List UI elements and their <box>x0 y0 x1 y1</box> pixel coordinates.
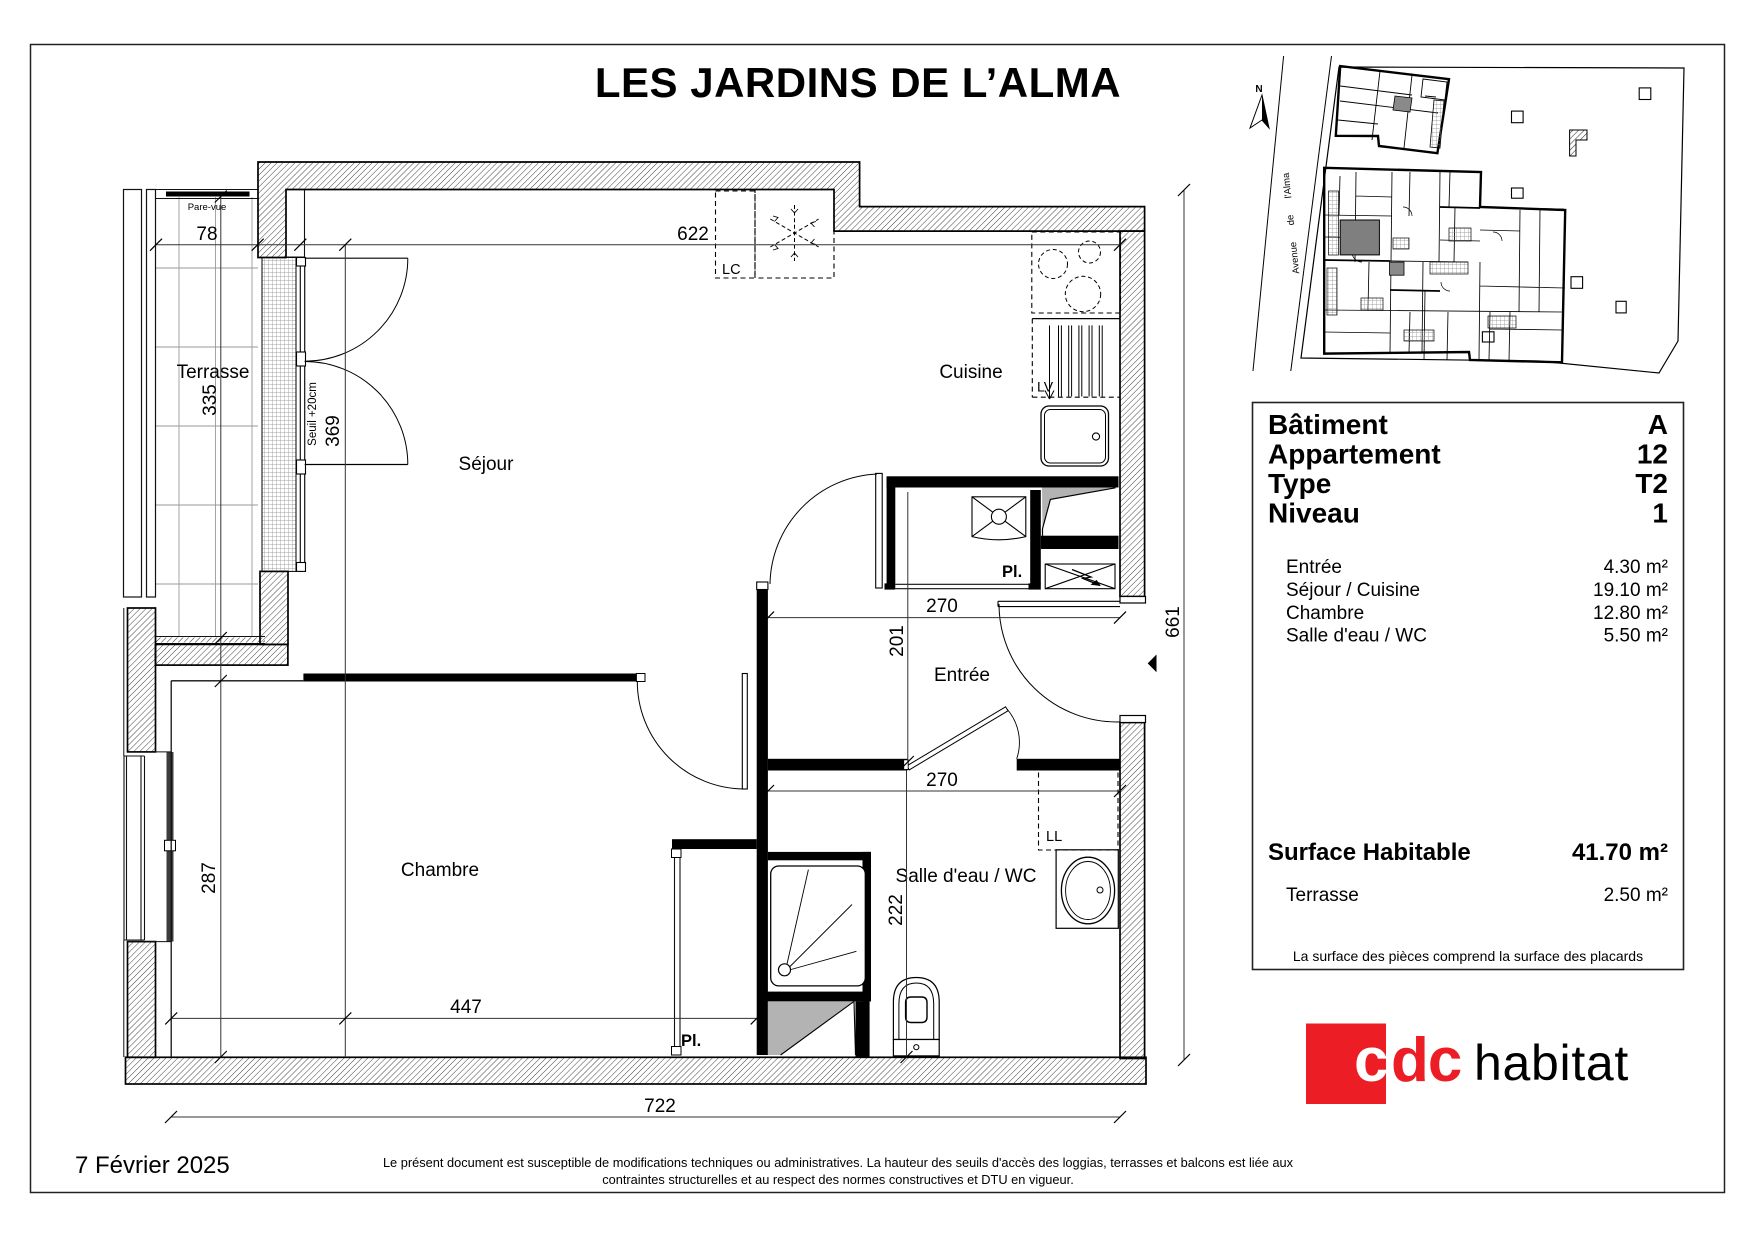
svg-text:LV: LV <box>1037 379 1054 395</box>
svg-text:Cuisine: Cuisine <box>939 362 1002 383</box>
svg-text:Salle d'eau / WC: Salle d'eau / WC <box>1286 626 1427 647</box>
svg-text:Seuil +20cm: Seuil +20cm <box>307 382 319 446</box>
svg-text:41.70 m²: 41.70 m² <box>1572 839 1668 866</box>
svg-text:Entrée: Entrée <box>934 665 990 686</box>
svg-text:LC: LC <box>722 262 741 278</box>
svg-text:Séjour: Séjour <box>459 454 515 475</box>
svg-text:1: 1 <box>1652 498 1668 529</box>
svg-text:270: 270 <box>926 596 958 617</box>
svg-text:4.30 m²: 4.30 m² <box>1604 557 1668 578</box>
svg-text:7 Février 2025: 7 Février 2025 <box>75 1152 230 1179</box>
svg-text:N: N <box>1255 84 1262 95</box>
svg-text:222: 222 <box>886 894 907 926</box>
svg-text:78: 78 <box>196 224 217 245</box>
svg-text:Niveau: Niveau <box>1268 498 1360 529</box>
svg-text:Salle d'eau / WC: Salle d'eau / WC <box>896 866 1037 887</box>
svg-text:335: 335 <box>200 384 221 416</box>
svg-text:Bâtiment: Bâtiment <box>1268 409 1388 440</box>
svg-text:19.10 m²: 19.10 m² <box>1593 580 1668 601</box>
svg-text:Terrasse: Terrasse <box>177 362 250 383</box>
svg-text:12: 12 <box>1637 439 1668 470</box>
svg-text:Appartement: Appartement <box>1268 439 1441 470</box>
svg-text:5.50 m²: 5.50 m² <box>1604 626 1668 647</box>
svg-text:A: A <box>1648 409 1668 440</box>
svg-text:Surface Habitable: Surface Habitable <box>1268 839 1471 866</box>
svg-text:LES JARDINS DE L’ALMA: LES JARDINS DE L’ALMA <box>595 59 1121 106</box>
svg-text:447: 447 <box>450 997 482 1018</box>
svg-text:201: 201 <box>887 625 908 657</box>
svg-text:Pl.: Pl. <box>681 1032 701 1050</box>
svg-text:287: 287 <box>199 862 220 894</box>
svg-text:2.50 m²: 2.50 m² <box>1604 885 1668 906</box>
svg-text:12.80 m²: 12.80 m² <box>1593 603 1668 624</box>
svg-text:contraintes structurelles et a: contraintes structurelles et au respect … <box>602 1172 1074 1187</box>
svg-text:Type: Type <box>1268 468 1331 499</box>
svg-text:Entrée: Entrée <box>1286 557 1342 578</box>
svg-text:661: 661 <box>1163 606 1184 638</box>
svg-text:Pl.: Pl. <box>1002 563 1022 581</box>
svg-text:Séjour / Cuisine: Séjour / Cuisine <box>1286 580 1420 601</box>
svg-text:Chambre: Chambre <box>401 860 479 881</box>
svg-text:La surface des pièces comprend: La surface des pièces comprend la surfac… <box>1293 948 1643 964</box>
svg-text:Chambre: Chambre <box>1286 603 1364 624</box>
svg-text:270: 270 <box>926 770 958 791</box>
svg-text:369: 369 <box>323 415 344 447</box>
svg-text:LL: LL <box>1046 829 1062 845</box>
svg-text:T2: T2 <box>1635 468 1668 499</box>
svg-text:622: 622 <box>677 224 709 245</box>
svg-text:dc: dc <box>1391 1026 1461 1095</box>
svg-text:Le présent document est suscep: Le présent document est susceptible de m… <box>383 1155 1294 1170</box>
svg-text:c: c <box>1354 1026 1387 1095</box>
svg-text:habitat: habitat <box>1474 1035 1629 1091</box>
svg-text:722: 722 <box>644 1096 676 1117</box>
svg-text:Terrasse: Terrasse <box>1286 885 1359 906</box>
